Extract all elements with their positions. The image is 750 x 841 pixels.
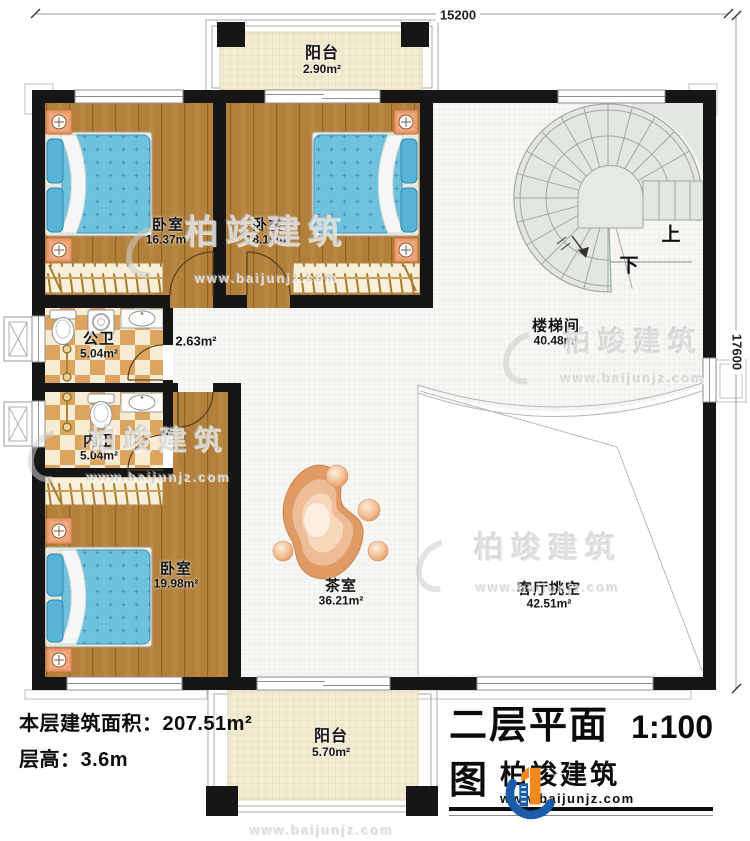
sink-public-bath xyxy=(121,309,163,328)
bed-bedroom3 xyxy=(45,547,152,647)
stair-straight-flight xyxy=(643,181,703,220)
floor-area-value: 207.51m² xyxy=(163,706,253,742)
room-label-bedroom2: 卧室 18.15m² xyxy=(246,216,291,247)
drawing-scale: 1:100 xyxy=(631,709,713,746)
wardrobe-bedroom2 xyxy=(293,263,420,293)
room-label-stair-hall: 楼梯间 40.48m² xyxy=(532,317,580,348)
brand-logo-icon xyxy=(500,760,558,822)
stone xyxy=(368,541,388,561)
title-underline-thin xyxy=(449,815,713,816)
wardrobe-bedroom1 xyxy=(45,263,163,293)
floor-height-label: 层高： xyxy=(19,742,81,778)
column xyxy=(206,786,238,816)
corridor-floor xyxy=(173,392,228,477)
bed-bedroom2 xyxy=(312,132,419,236)
closet-bedroom3 xyxy=(45,477,163,505)
stone xyxy=(358,499,380,521)
room-label-balcony-top: 阳台 2.90m² xyxy=(303,45,341,77)
dimension-height: 17600 xyxy=(730,330,745,374)
column xyxy=(217,22,245,47)
planter-box-bottom xyxy=(4,402,32,446)
title-underline xyxy=(449,807,713,811)
floor-height-value: 3.6m xyxy=(81,742,129,778)
room-label-tea-room: 茶室 36.21m² xyxy=(319,577,364,608)
room-label-hall-niche: 2.63m² xyxy=(175,335,216,350)
living-void-region xyxy=(418,383,702,675)
room-label-balcony-bottom: 阳台 5.70m² xyxy=(312,728,350,760)
sink-private-bath xyxy=(121,393,163,412)
dimension-width: 15200 xyxy=(436,8,480,23)
stair-up-label: 上 xyxy=(661,220,680,247)
toilet-private-bath xyxy=(88,394,114,429)
floor-height-row: 层高： 3.6m xyxy=(19,742,252,778)
floor-plan: 阳台 2.90m² 卧室 16.37m² 卧室 18.15m² 楼梯间 40.4… xyxy=(0,0,750,841)
room-label-bedroom1: 卧室 16.37m² xyxy=(146,216,191,247)
column xyxy=(401,22,429,47)
room-label-public-bath: 公卫 5.04m² xyxy=(80,330,118,361)
floor-area-row: 本层建筑面积： 207.51m² xyxy=(19,706,252,742)
column xyxy=(406,786,438,816)
floor-area-label: 本层建筑面积： xyxy=(19,706,163,742)
stair-down-label: 下 xyxy=(619,251,638,278)
planter-box-top xyxy=(4,317,32,361)
stone xyxy=(326,465,348,487)
toilet-public-bath xyxy=(50,310,76,345)
room-label-living-void: 客厅挑空 42.51m² xyxy=(517,580,581,611)
footer-info: 本层建筑面积： 207.51m² 层高： 3.6m xyxy=(19,706,252,778)
room-label-private-bath: 内卫 5.04m² xyxy=(80,432,118,463)
stair-landing xyxy=(578,166,643,229)
stone xyxy=(273,541,293,561)
room-label-bedroom3: 卧室 19.98m² xyxy=(154,560,199,591)
brand-logo: 柏竣建筑 www.baijunjz.com xyxy=(500,760,635,806)
bed-bedroom1 xyxy=(45,132,152,236)
